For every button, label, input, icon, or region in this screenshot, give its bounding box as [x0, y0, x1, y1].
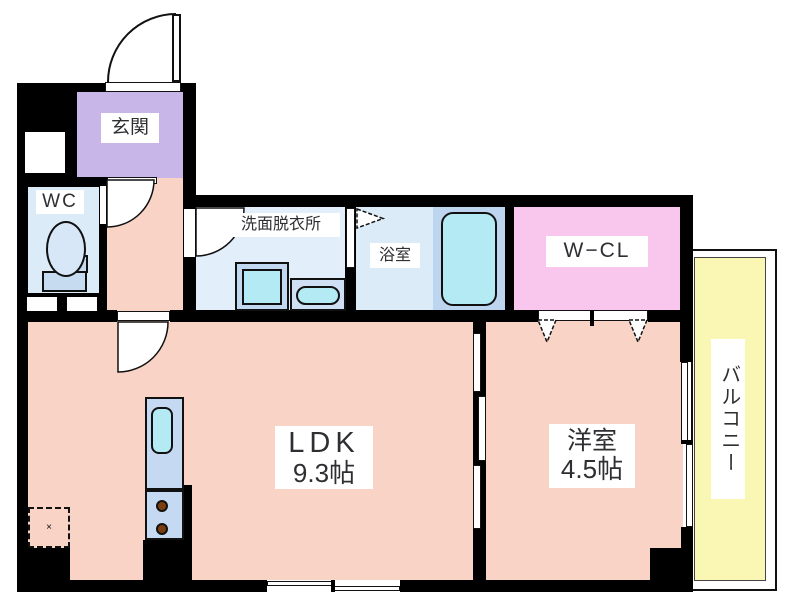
washroom-text: 洗面脱衣所 [241, 216, 321, 233]
bathtub-icon [441, 212, 497, 306]
room-ldk [28, 320, 474, 582]
wall-washrow-top [183, 195, 693, 207]
wc-wall-vent-1 [27, 297, 57, 311]
balcony-text: バルコニー [717, 364, 739, 474]
stove-burner-icon-1 [156, 500, 168, 512]
closet-opening-tick [590, 310, 594, 326]
wall-bath-wcl [505, 195, 514, 318]
kitchen-window-tick [331, 580, 335, 592]
wall-wc-top [17, 177, 107, 187]
genkan-text: 玄関 [111, 118, 149, 139]
toilet-icon [46, 221, 86, 277]
wall-kitchen-side [183, 485, 192, 540]
balcony-window-tick [681, 440, 693, 444]
entrance-door-swing [108, 14, 176, 82]
label-wc: WC [36, 190, 84, 214]
wall-notch [25, 132, 65, 173]
wall-corner-chunk [650, 548, 682, 583]
wc-door-opening [100, 186, 106, 224]
kitchen-window-pane-1 [267, 581, 334, 586]
wall-top-left [77, 83, 105, 92]
entrance-door-leaf [172, 14, 181, 82]
western-size: 4.5帖 [561, 455, 623, 483]
balcony-window-pane-2 [686, 444, 693, 527]
stove-burner-icon-2 [156, 523, 168, 535]
label-washroom: 洗面脱衣所 [222, 213, 340, 237]
wall-kitchen-chunk [143, 540, 192, 580]
label-bathroom: 浴室 [370, 243, 420, 268]
vanity-sink-icon [296, 286, 340, 305]
kitchen-window-pane-2 [333, 586, 400, 591]
floor-plan: × 玄関 WC 洗面脱衣所 浴室 W−CL LDK 9.3帖 洋室 4.5帖 バ… [0, 0, 800, 611]
refrigerator-space: × [28, 507, 70, 548]
kitchen-sink-icon [151, 407, 173, 454]
wcl-text: W−CL [564, 240, 631, 263]
washing-machine-tub [242, 269, 282, 305]
wall-bottomleft-chunk [28, 548, 70, 580]
wall-right-upper [680, 195, 693, 362]
bathroom-door-panel [346, 208, 355, 268]
label-genkan: 玄関 [101, 113, 159, 143]
wall-mid-left [17, 310, 117, 322]
room-hallway [107, 178, 183, 318]
ldk-name: LDK [288, 428, 359, 459]
sliding-door-panel-1 [473, 333, 481, 392]
sliding-door-panel-2 [478, 396, 486, 461]
label-ldk: LDK 9.3帖 [275, 426, 373, 489]
wc-text: WC [42, 192, 78, 213]
label-western: 洋室 4.5帖 [549, 424, 635, 488]
ldk-door-threshold [117, 311, 170, 321]
entrance-threshold [105, 82, 181, 92]
label-balcony: バルコニー [711, 339, 745, 499]
label-wcl: W−CL [546, 236, 648, 267]
washroom-door-opening [184, 209, 195, 257]
western-name: 洋室 [567, 428, 617, 455]
wc-wall-vent-2 [67, 297, 97, 311]
bathroom-text: 浴室 [379, 247, 411, 264]
genkan-step [107, 177, 157, 184]
balcony-window-pane-1 [681, 362, 688, 442]
sliding-door-panel-3 [473, 465, 481, 529]
ldk-size: 9.3帖 [293, 459, 355, 487]
